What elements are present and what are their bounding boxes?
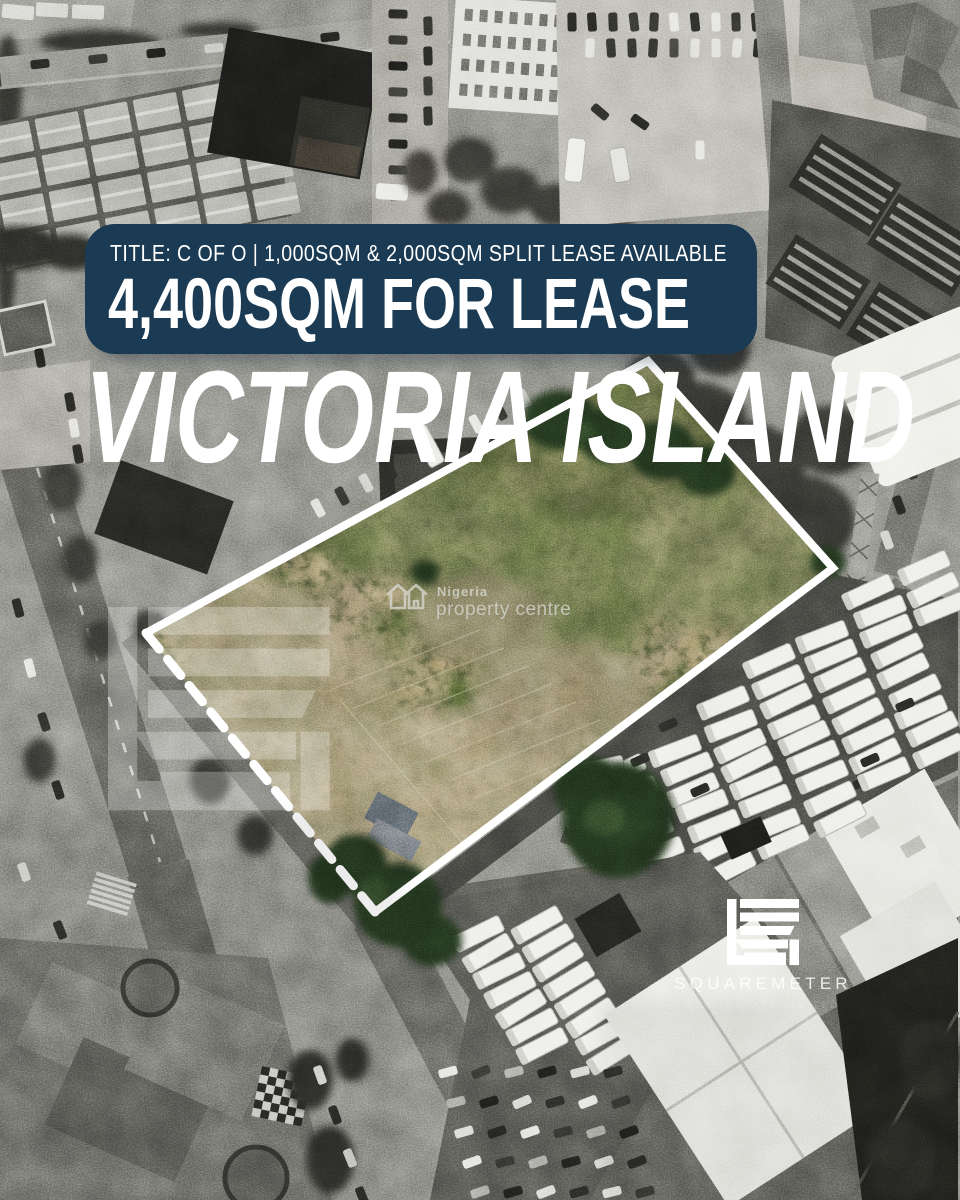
svg-text:TITLE: C OF O | 1,000SQM & 2,: TITLE: C OF O | 1,000SQM & 2,000SQM SPLI… [110, 240, 727, 266]
svg-text:4,400SQM FOR LEASE: 4,400SQM FOR LEASE [108, 265, 690, 344]
svg-text:REAL ESTATE LIMITED: REAL ESTATE LIMITED [686, 1000, 840, 1010]
svg-text:property centre: property centre [436, 599, 571, 620]
svg-text:SQUAREMETER: SQUAREMETER [674, 974, 852, 993]
svg-text:VICTORIA ISLAND: VICTORIA ISLAND [85, 343, 915, 490]
svg-text:Nigeria: Nigeria [437, 584, 488, 599]
